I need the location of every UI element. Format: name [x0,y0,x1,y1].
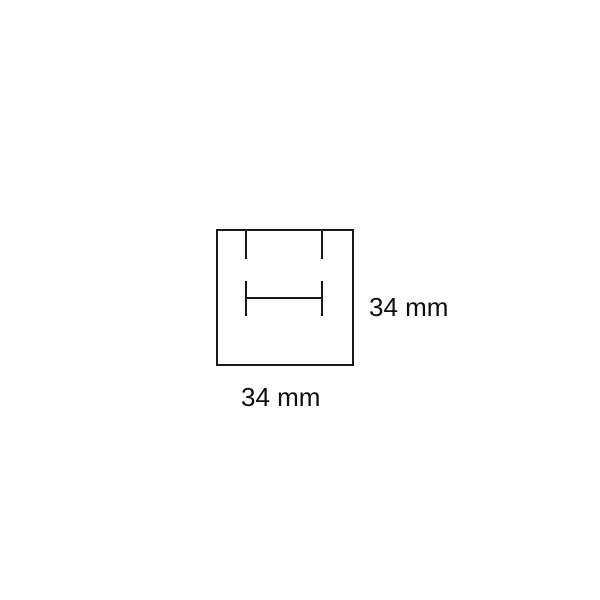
top-tick-left [245,230,248,259]
height-label: 34 mm [369,294,448,320]
inner-dimension-bar [245,297,324,300]
top-tick-right [321,230,324,259]
dimension-diagram: 34 mm 34 mm [0,0,600,600]
width-label: 34 mm [241,384,320,410]
